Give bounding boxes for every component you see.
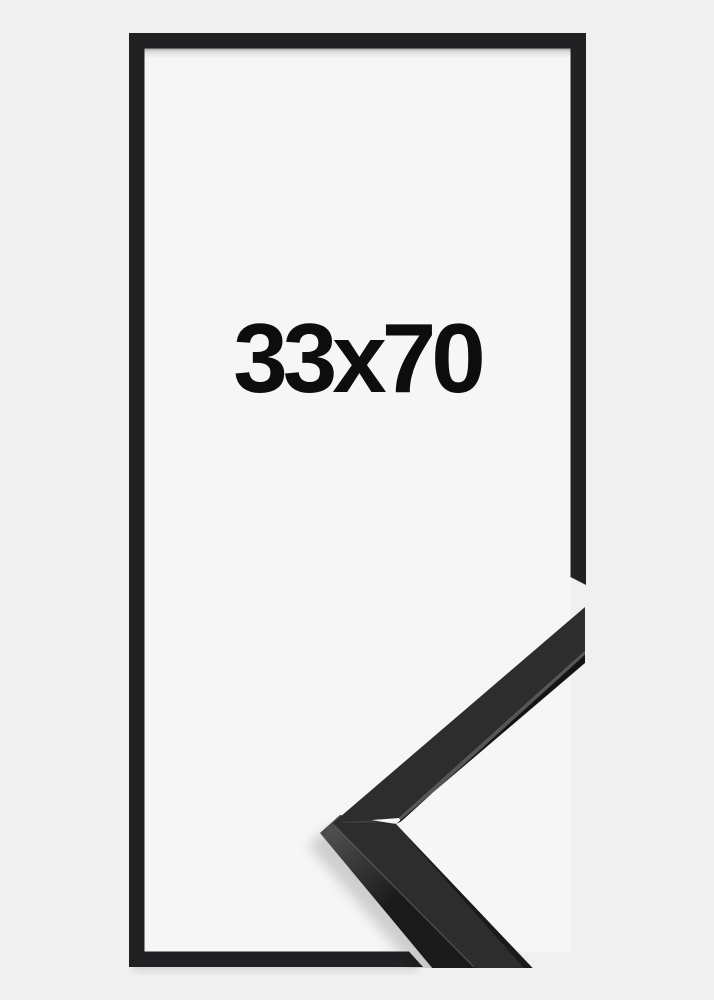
frame-bar-bottom [129, 952, 423, 968]
frame-bar-top [129, 33, 586, 49]
frame-bar-right [571, 33, 587, 585]
product-image: 33x70 [0, 0, 714, 1000]
frame-inner-shadow [145, 49, 571, 59]
frame-product-graphic: 33x70 [0, 0, 714, 1000]
frame-bar-left [129, 33, 145, 967]
size-label: 33x70 [233, 303, 482, 413]
